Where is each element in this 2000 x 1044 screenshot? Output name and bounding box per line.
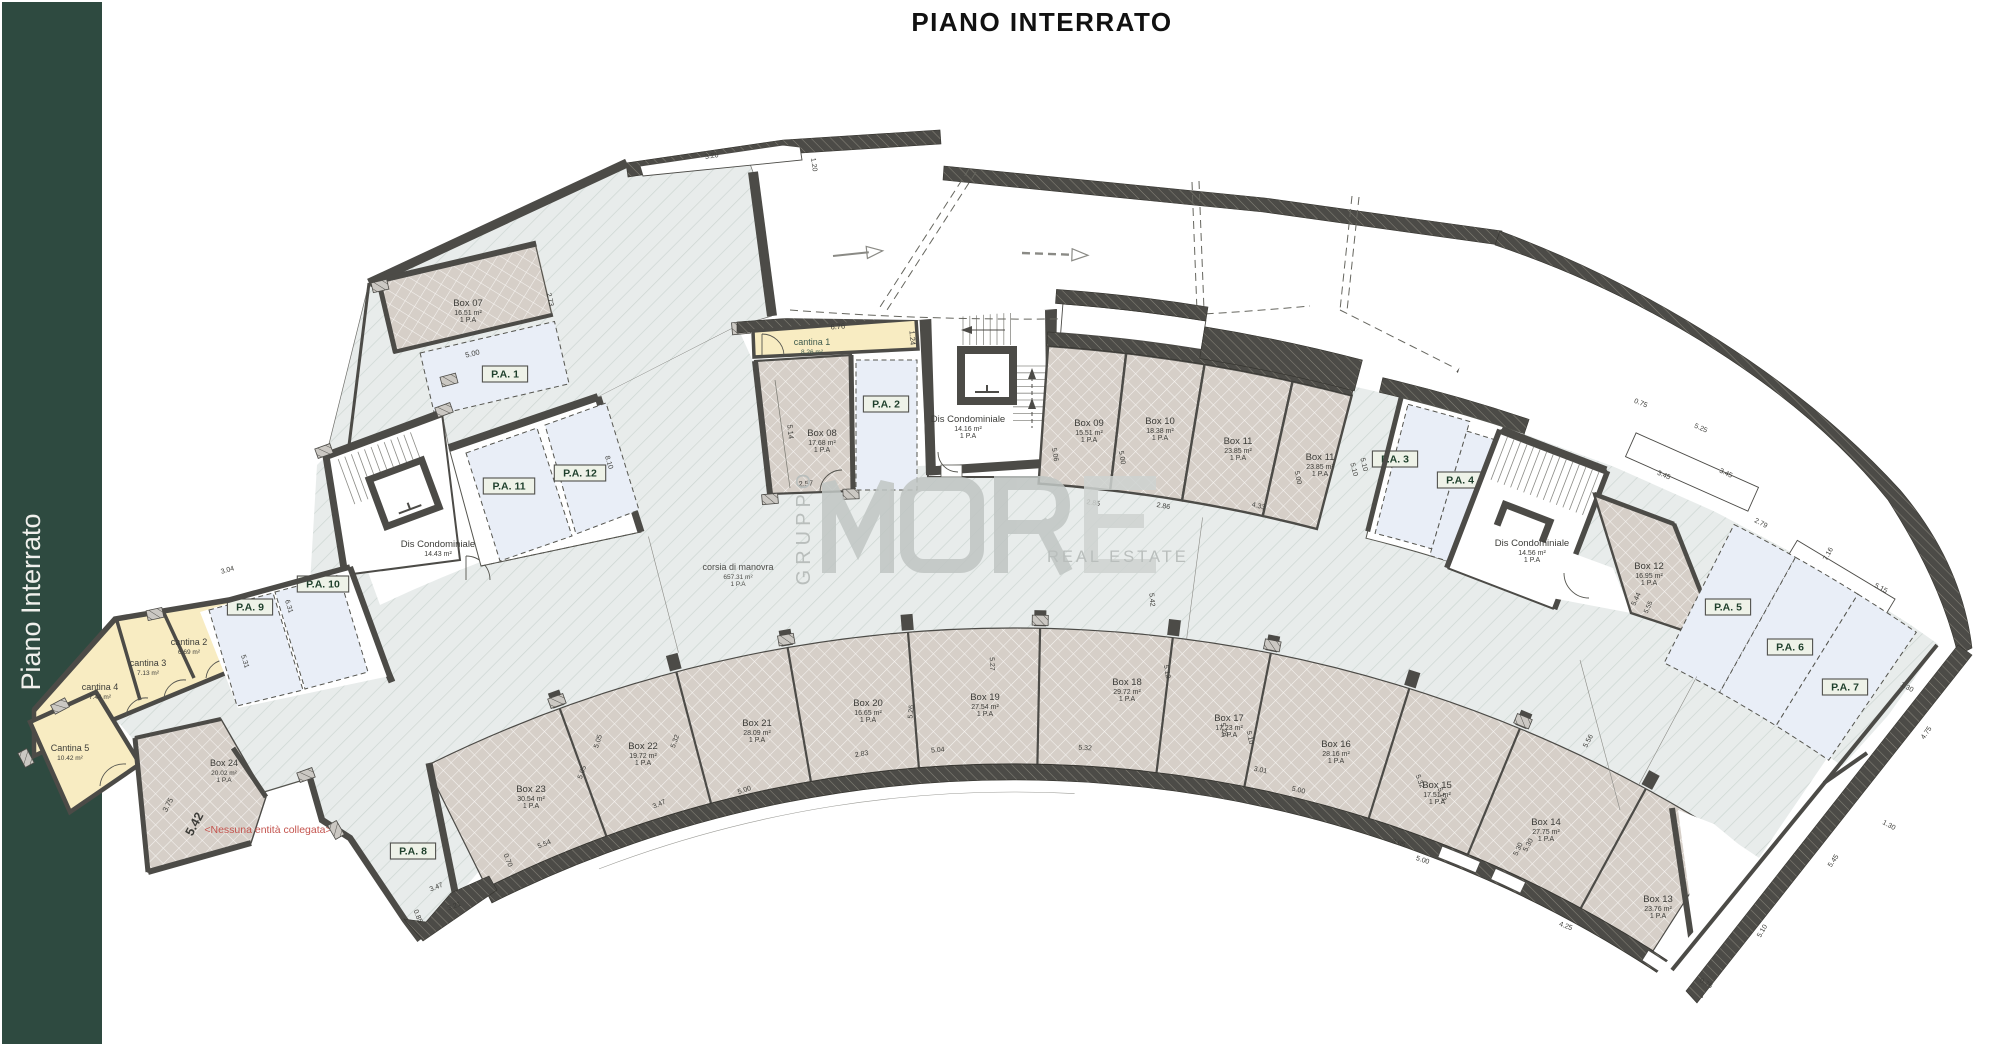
svg-text:23.85 m²: 23.85 m²	[1306, 464, 1334, 471]
svg-text:28.09 m²: 28.09 m²	[743, 730, 771, 737]
svg-text:657.31 m²: 657.31 m²	[723, 574, 753, 581]
svg-text:17.51 m²: 17.51 m²	[1423, 792, 1451, 799]
svg-text:18.38 m²: 18.38 m²	[1146, 428, 1174, 435]
svg-text:Piano Interrato: Piano Interrato	[16, 513, 46, 690]
svg-text:14.56 m²: 14.56 m²	[1518, 550, 1546, 557]
svg-text:15.51 m²: 15.51 m²	[1075, 430, 1103, 437]
svg-text:Dis Condominiale: Dis Condominiale	[401, 539, 475, 550]
svg-text:1 P.A: 1 P.A	[1152, 435, 1169, 442]
svg-text:Box 20: Box 20	[853, 698, 883, 709]
svg-text:P.A. 6: P.A. 6	[1776, 642, 1804, 654]
svg-text:1 P.A: 1 P.A	[1119, 696, 1136, 703]
svg-text:P.A. 12: P.A. 12	[563, 468, 597, 480]
svg-text:1 P.A: 1 P.A	[460, 317, 477, 324]
svg-text:1 P.A: 1 P.A	[960, 433, 977, 440]
svg-text:Box 12: Box 12	[1634, 561, 1664, 572]
svg-text:1 P.A: 1 P.A	[1641, 580, 1658, 587]
svg-text:cantina 2: cantina 2	[171, 637, 208, 647]
svg-text:P.A. 8: P.A. 8	[399, 846, 427, 858]
svg-text:Box 11: Box 11	[1306, 452, 1335, 463]
svg-text:Box 09: Box 09	[1074, 418, 1104, 429]
svg-text:P.A. 7: P.A. 7	[1831, 682, 1859, 694]
svg-text:Dis Condominiale: Dis Condominiale	[1495, 538, 1569, 549]
svg-text:1 P.A: 1 P.A	[860, 717, 877, 724]
svg-text:cantina 4: cantina 4	[82, 682, 119, 692]
svg-text:Box 10: Box 10	[1145, 416, 1175, 427]
svg-text:16.51 m²: 16.51 m²	[454, 310, 482, 317]
svg-text:corsia di manovra: corsia di manovra	[702, 562, 773, 572]
svg-text:5.32: 5.32	[1078, 745, 1092, 753]
svg-text:Box 11: Box 11	[1224, 436, 1253, 447]
svg-text:1 P.A: 1 P.A	[1221, 732, 1238, 739]
svg-text:1 P.A: 1 P.A	[730, 581, 746, 588]
svg-text:REAL ESTATE: REAL ESTATE	[1047, 548, 1189, 566]
svg-text:16.95 m²: 16.95 m²	[1635, 573, 1663, 580]
svg-text:Box 23: Box 23	[516, 784, 546, 795]
svg-text:16.65 m²: 16.65 m²	[854, 710, 882, 717]
svg-text:7.13 m²: 7.13 m²	[137, 670, 160, 677]
svg-text:Box 17: Box 17	[1214, 713, 1244, 724]
svg-text:6.76: 6.76	[830, 322, 845, 332]
svg-text:1 P.A: 1 P.A	[1312, 471, 1329, 478]
svg-text:1 P.A: 1 P.A	[635, 760, 652, 767]
svg-text:14.16 m²: 14.16 m²	[954, 426, 982, 433]
svg-text:Cantina 5: Cantina 5	[51, 743, 90, 753]
svg-text:1.24: 1.24	[907, 330, 917, 345]
svg-text:cantina 1: cantina 1	[794, 337, 831, 347]
svg-text:1 P.A: 1 P.A	[216, 777, 232, 784]
svg-text:Box 14: Box 14	[1531, 817, 1561, 828]
svg-text:Box 08: Box 08	[807, 428, 837, 439]
svg-text:1 P.A: 1 P.A	[1328, 758, 1345, 765]
svg-text:Box 07: Box 07	[453, 298, 483, 309]
svg-text:1 P.A: 1 P.A	[977, 711, 994, 718]
svg-text:1 P.A: 1 P.A	[1524, 557, 1541, 564]
svg-text:PIANO INTERRATO: PIANO INTERRATO	[911, 7, 1172, 37]
svg-text:1 P.A: 1 P.A	[1650, 913, 1667, 920]
svg-text:5.27: 5.27	[988, 657, 995, 671]
svg-text:14.43 m²: 14.43 m²	[424, 551, 452, 558]
svg-text:Box 15: Box 15	[1422, 780, 1452, 791]
svg-text:1 P.A: 1 P.A	[1429, 799, 1446, 806]
svg-text:20.02 m²: 20.02 m²	[211, 770, 237, 777]
svg-text:23.85 m²: 23.85 m²	[1224, 448, 1252, 455]
svg-text:<Nessuna entità collegata>: <Nessuna entità collegata>	[204, 824, 331, 836]
svg-text:Box 22: Box 22	[628, 741, 658, 752]
svg-text:Box 24: Box 24	[210, 758, 238, 768]
svg-text:1 P.A: 1 P.A	[749, 737, 766, 744]
svg-text:17.23 m²: 17.23 m²	[1215, 725, 1243, 732]
svg-text:5.04: 5.04	[931, 746, 945, 754]
svg-text:Box 18: Box 18	[1112, 677, 1142, 688]
svg-text:P.A. 2: P.A. 2	[872, 399, 900, 411]
svg-text:P.A. 1: P.A. 1	[491, 369, 519, 381]
svg-text:5.42: 5.42	[1147, 593, 1155, 607]
svg-text:1 P.A: 1 P.A	[1081, 437, 1098, 444]
svg-text:5.14: 5.14	[785, 424, 795, 439]
svg-text:GRUPPO: GRUPPO	[793, 469, 815, 586]
svg-text:1 P.A: 1 P.A	[1538, 836, 1555, 843]
svg-text:28.16 m²: 28.16 m²	[1322, 751, 1350, 758]
svg-text:Box 19: Box 19	[970, 692, 1000, 703]
svg-text:27.75 m²: 27.75 m²	[1532, 829, 1560, 836]
svg-text:27.54 m²: 27.54 m²	[971, 704, 999, 711]
svg-text:17.68 m²: 17.68 m²	[808, 440, 836, 447]
svg-text:P.A. 4: P.A. 4	[1446, 475, 1474, 487]
svg-text:Box 21: Box 21	[742, 718, 772, 729]
svg-text:1 P.A: 1 P.A	[523, 803, 540, 810]
svg-text:P.A. 11: P.A. 11	[492, 481, 525, 493]
svg-text:7.44 m²: 7.44 m²	[89, 694, 112, 701]
svg-text:19.72 m²: 19.72 m²	[629, 753, 657, 760]
svg-text:cantina 3: cantina 3	[130, 658, 167, 668]
svg-text:Box 13: Box 13	[1643, 894, 1673, 905]
svg-text:P.A. 5: P.A. 5	[1714, 602, 1742, 614]
svg-text:Dis Condominiale: Dis Condominiale	[931, 414, 1005, 425]
svg-text:1 P.A: 1 P.A	[1230, 455, 1247, 462]
svg-text:P.A. 9: P.A. 9	[236, 602, 264, 614]
svg-text:Box 16: Box 16	[1321, 739, 1351, 750]
svg-text:1 P.A: 1 P.A	[814, 447, 831, 454]
svg-text:5.26: 5.26	[907, 705, 915, 719]
svg-text:30.54 m²: 30.54 m²	[517, 796, 545, 803]
svg-text:10.42 m²: 10.42 m²	[57, 755, 83, 762]
svg-text:8.26 m²: 8.26 m²	[801, 349, 824, 356]
svg-text:29.72 m²: 29.72 m²	[1113, 689, 1141, 696]
svg-text:23.76 m²: 23.76 m²	[1644, 906, 1672, 913]
svg-text:6.69 m²: 6.69 m²	[178, 649, 201, 656]
